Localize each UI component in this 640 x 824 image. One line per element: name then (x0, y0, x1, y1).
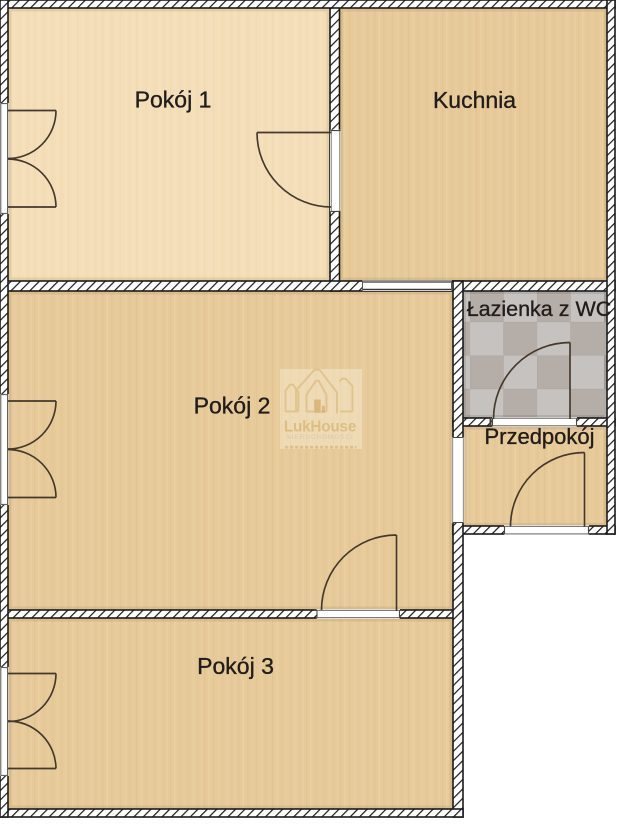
svg-text:Pokój 2: Pokój 2 (194, 392, 271, 418)
svg-text:Kuchnia: Kuchnia (433, 87, 516, 113)
svg-text:NIERUCHOMOŚCI: NIERUCHOMOŚCI (286, 433, 354, 441)
svg-text:Łazienka z WC: Łazienka z WC (467, 297, 612, 321)
svg-text:Pokój 1: Pokój 1 (135, 86, 212, 112)
svg-text:Przedpokój: Przedpokój (484, 424, 594, 449)
svg-text:Pokój 3: Pokój 3 (197, 653, 274, 679)
